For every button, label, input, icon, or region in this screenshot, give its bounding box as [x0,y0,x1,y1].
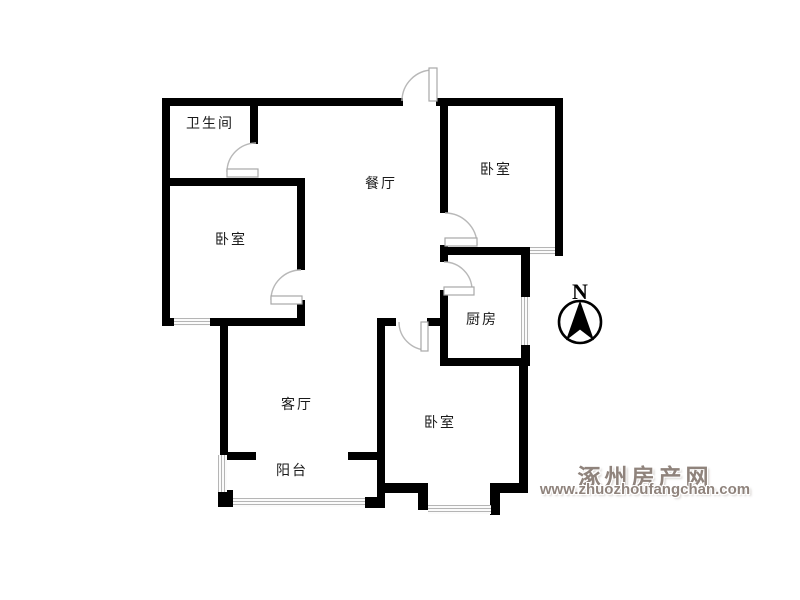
bedroom-bottom-door-leaf-icon [421,322,428,351]
compass: N [559,279,601,343]
bathroom-door-leaf-icon [227,169,258,177]
entry-door-arc-icon [402,70,433,101]
floorplan-canvas: N 卫生间 餐厅 卧室 卧室 厨房 客厅 阳台 卧室 涿州房产网 www.zhu… [0,0,800,600]
compass-needle-icon [567,302,593,339]
entry-door-leaf-icon [429,68,437,101]
room-label-bathroom: 卫生间 [186,113,234,133]
room-label-living: 客厅 [281,394,313,414]
bedroom-left-door-leaf-icon [271,296,302,304]
room-label-dining: 餐厅 [365,173,397,193]
room-label-bedroom-top-right: 卧室 [480,159,512,179]
room-label-balcony: 阳台 [276,460,308,480]
kitchen-door-leaf-icon [444,287,474,295]
room-label-bedroom-left: 卧室 [215,229,247,249]
bathroom-door-arc-icon [227,143,256,172]
kitchen-door-arc-icon [444,262,472,290]
room-label-bedroom-bottom: 卧室 [424,412,456,432]
bedroom-topright-door-leaf-icon [445,238,477,246]
door-and-compass-layer: N [0,0,800,600]
watermark-site-url: www.zhuozhoufangchan.com [512,481,778,498]
room-label-kitchen: 厨房 [466,309,498,329]
